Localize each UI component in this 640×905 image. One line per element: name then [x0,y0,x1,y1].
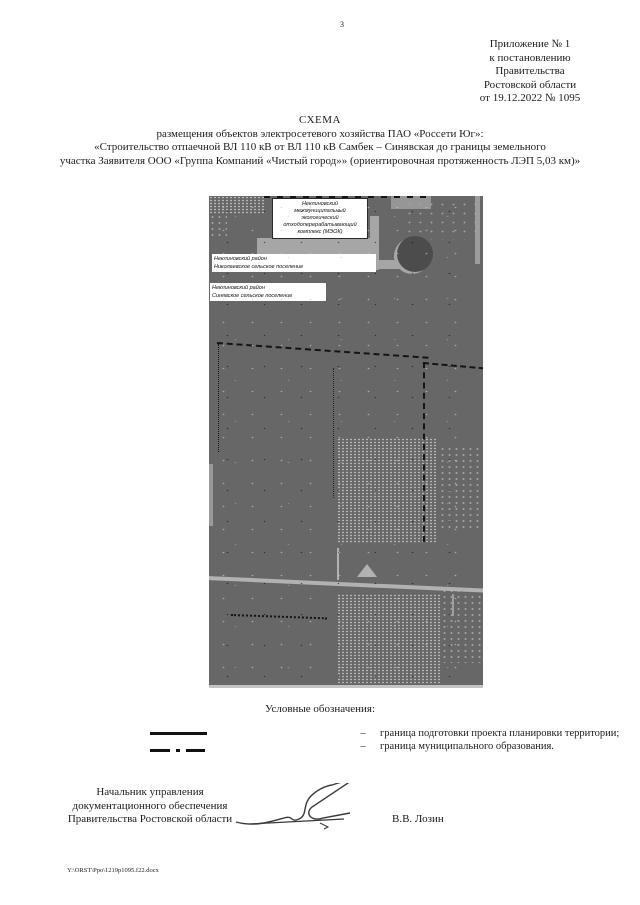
legend-label: граница муниципального образования. [380,741,640,753]
page-number: 3 [330,20,354,29]
solid-line-symbol [150,732,207,735]
map-edge [209,685,483,688]
document-page: 3 Приложение № 1 к постановлению Правите… [0,0,640,905]
legend-item: – граница муниципального образования. [150,741,590,754]
scheme-map-image: Неклиновский межмуниципальный экологичес… [209,196,483,688]
map-noise-overlay [209,196,483,688]
document-file-path: Y:\ORST\Ppo\1219p1095.f22.docx [67,867,159,874]
appendix-line: от 19.12.2022 № 1095 [460,92,600,106]
legend-title: Условные обозначения: [0,703,640,715]
appendix-block: Приложение № 1 к постановлению Правитель… [460,38,600,106]
legend-separator: – [356,741,370,753]
handwritten-signature [232,783,367,840]
title-line: участка Заявителя ООО «Группа Компаний «… [20,155,620,169]
title-heading: СХЕМА [20,114,620,128]
title-line: «Строительство отпаечной ВЛ 110 кВ от ВЛ… [20,141,620,155]
signatory-name: В.В. Лозин [392,813,444,825]
legend-label: граница подготовки проекта планировки те… [380,728,640,740]
appendix-line: Ростовской области [460,79,600,93]
dash-dot-line-symbol [150,745,207,748]
appendix-line: к постановлению [460,52,600,66]
document-title: СХЕМА размещения объектов электросетевог… [20,114,620,168]
title-line: размещения объектов электросетевого хозя… [20,128,620,142]
legend-item: – граница подготовки проекта планировки … [150,728,590,741]
legend-separator: – [356,728,370,740]
appendix-line: Приложение № 1 [460,38,600,52]
appendix-line: Правительства [460,65,600,79]
